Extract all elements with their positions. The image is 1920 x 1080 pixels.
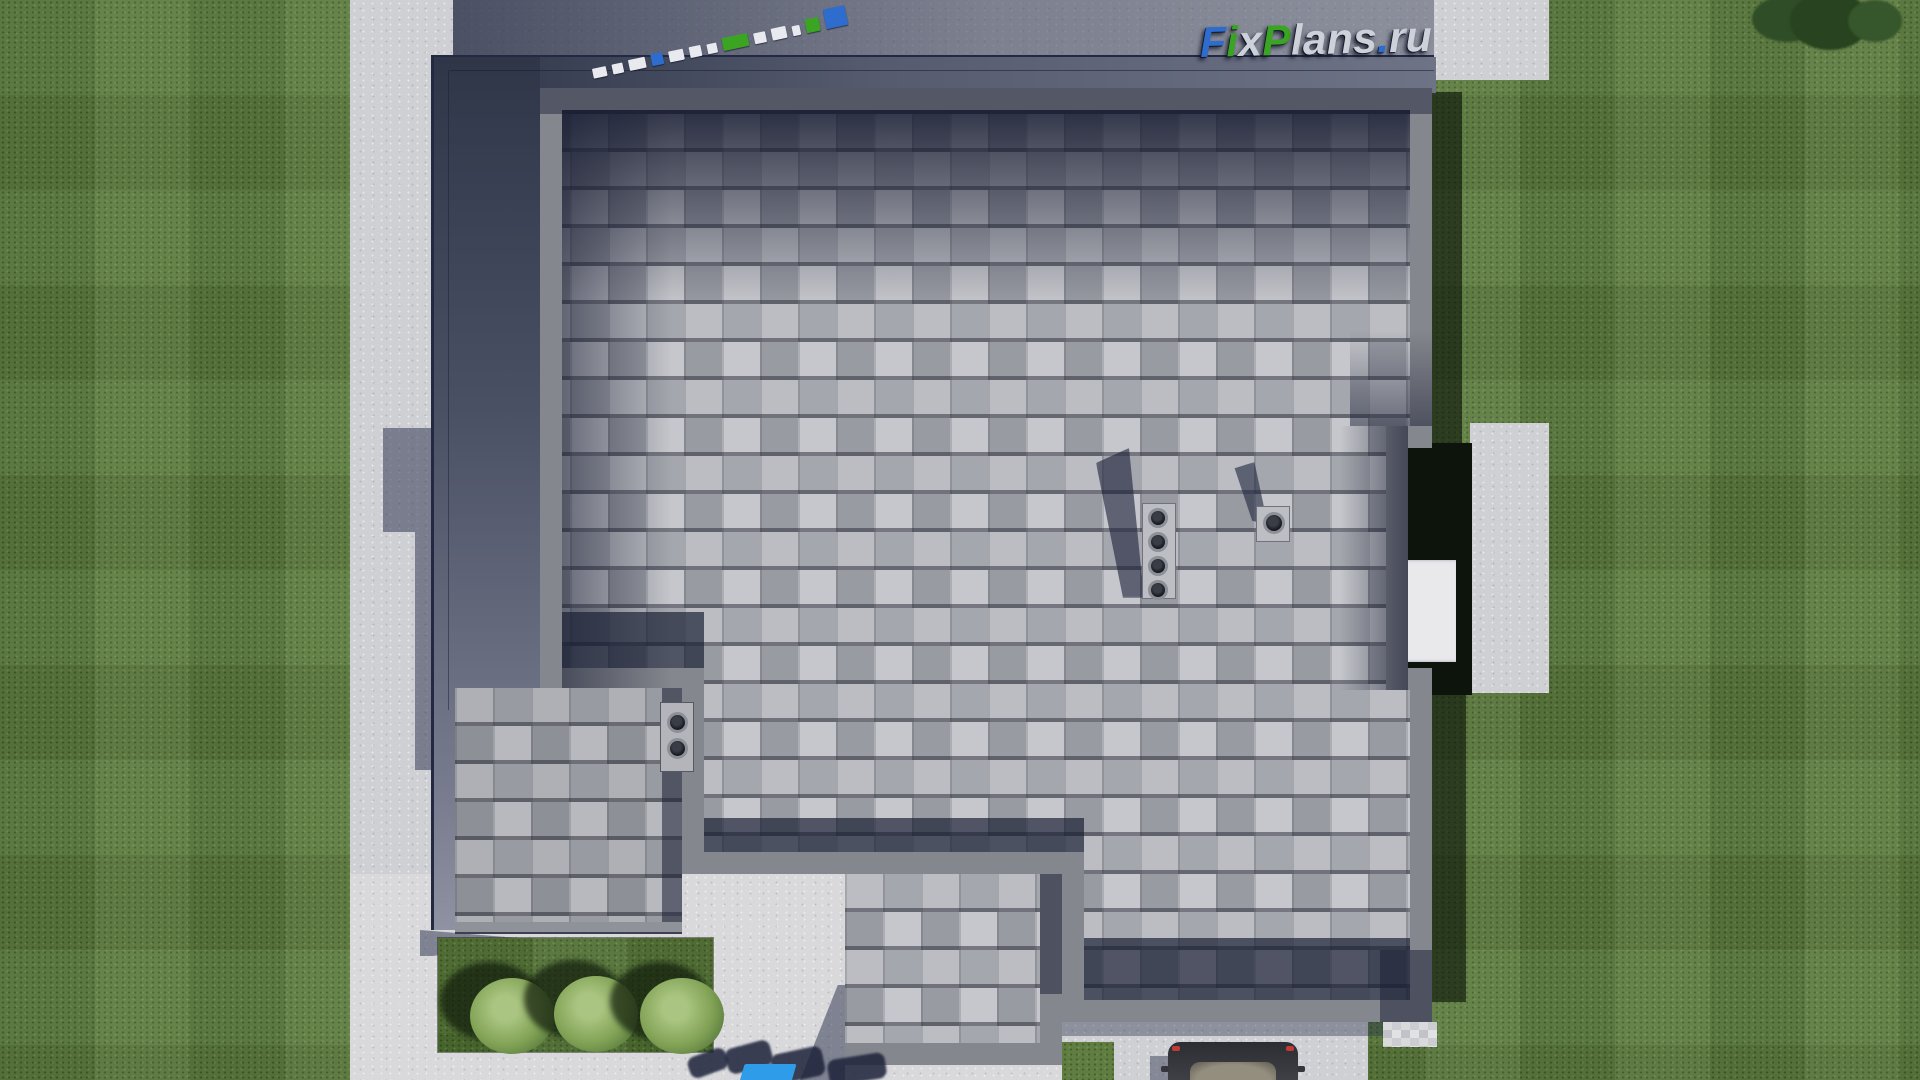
porch-roof xyxy=(845,874,1062,1065)
watermark-blue-fragment xyxy=(739,1064,796,1080)
logo-letter: n xyxy=(1326,15,1354,65)
car-mirror-left xyxy=(1161,1066,1169,1072)
house-shadow-on-grass-lower xyxy=(1432,695,1466,1002)
aerial-house-render: FixPlans.ru xyxy=(0,0,1920,1080)
logo-letter: s xyxy=(1352,14,1377,64)
white-terrace-pad xyxy=(1402,560,1456,662)
car-taillight-right xyxy=(1286,1046,1294,1051)
standing-watermark-block xyxy=(650,52,664,66)
chimney-pipe-1 xyxy=(1148,508,1168,528)
garage-fascia xyxy=(455,922,682,934)
logo-letter: a xyxy=(1302,16,1327,66)
roof-notch-shade xyxy=(1340,426,1408,690)
logo-letter: x xyxy=(1238,17,1263,67)
roof-step-shade-lower-left xyxy=(562,612,704,668)
roof-shade-above-notch xyxy=(1350,330,1432,426)
roof-step-shade-bottom-right xyxy=(1084,938,1410,1000)
porch-right-shade xyxy=(1040,874,1062,994)
chimney-pipe-4 xyxy=(1148,580,1168,600)
standing-watermark-block xyxy=(791,25,801,37)
roof-step-shade-bottom-mid xyxy=(704,818,1084,852)
standing-watermark-block xyxy=(707,42,719,54)
house-shadow-on-grass-right xyxy=(1432,92,1462,443)
small-vent-pipe-1 xyxy=(667,712,688,733)
roof-top-slope-shade xyxy=(562,110,1410,305)
deck-inner-line-left xyxy=(448,70,449,710)
vent-pipe xyxy=(1263,512,1285,534)
concrete-top-right xyxy=(1432,0,1549,80)
logo-letter: u xyxy=(1405,13,1433,63)
standing-watermark-block xyxy=(805,17,821,34)
tree-foliage xyxy=(1848,0,1902,42)
grass-strip-bottom xyxy=(1062,1042,1114,1080)
small-vent-pipe-2 xyxy=(667,738,688,759)
garage-roof xyxy=(455,688,682,932)
car xyxy=(1168,1042,1298,1080)
roof-left-slope-shade xyxy=(562,110,672,690)
fixplans-logo-watermark: FixPlans.ru xyxy=(1199,13,1432,68)
concrete-right-patch xyxy=(1470,423,1549,693)
car-taillight-left xyxy=(1172,1046,1180,1051)
house-shadow-protrusion xyxy=(383,428,433,532)
car-mirror-right xyxy=(1297,1066,1305,1072)
chimney-pipe-2 xyxy=(1148,532,1168,552)
deck-edge-line-left xyxy=(431,55,434,930)
corner-stone-blocks xyxy=(1383,1022,1437,1047)
eave-shadow-driveway xyxy=(1062,1022,1437,1036)
car-windshield xyxy=(1190,1062,1276,1080)
chimney-pipe-3 xyxy=(1148,556,1168,576)
bush xyxy=(640,978,724,1054)
roof-corner-shade xyxy=(1380,950,1432,1022)
tree-top-right xyxy=(1752,0,1912,58)
logo-letter: F xyxy=(1199,18,1227,68)
logo-letter: P xyxy=(1262,17,1292,67)
logo-letter: r xyxy=(1388,14,1406,63)
